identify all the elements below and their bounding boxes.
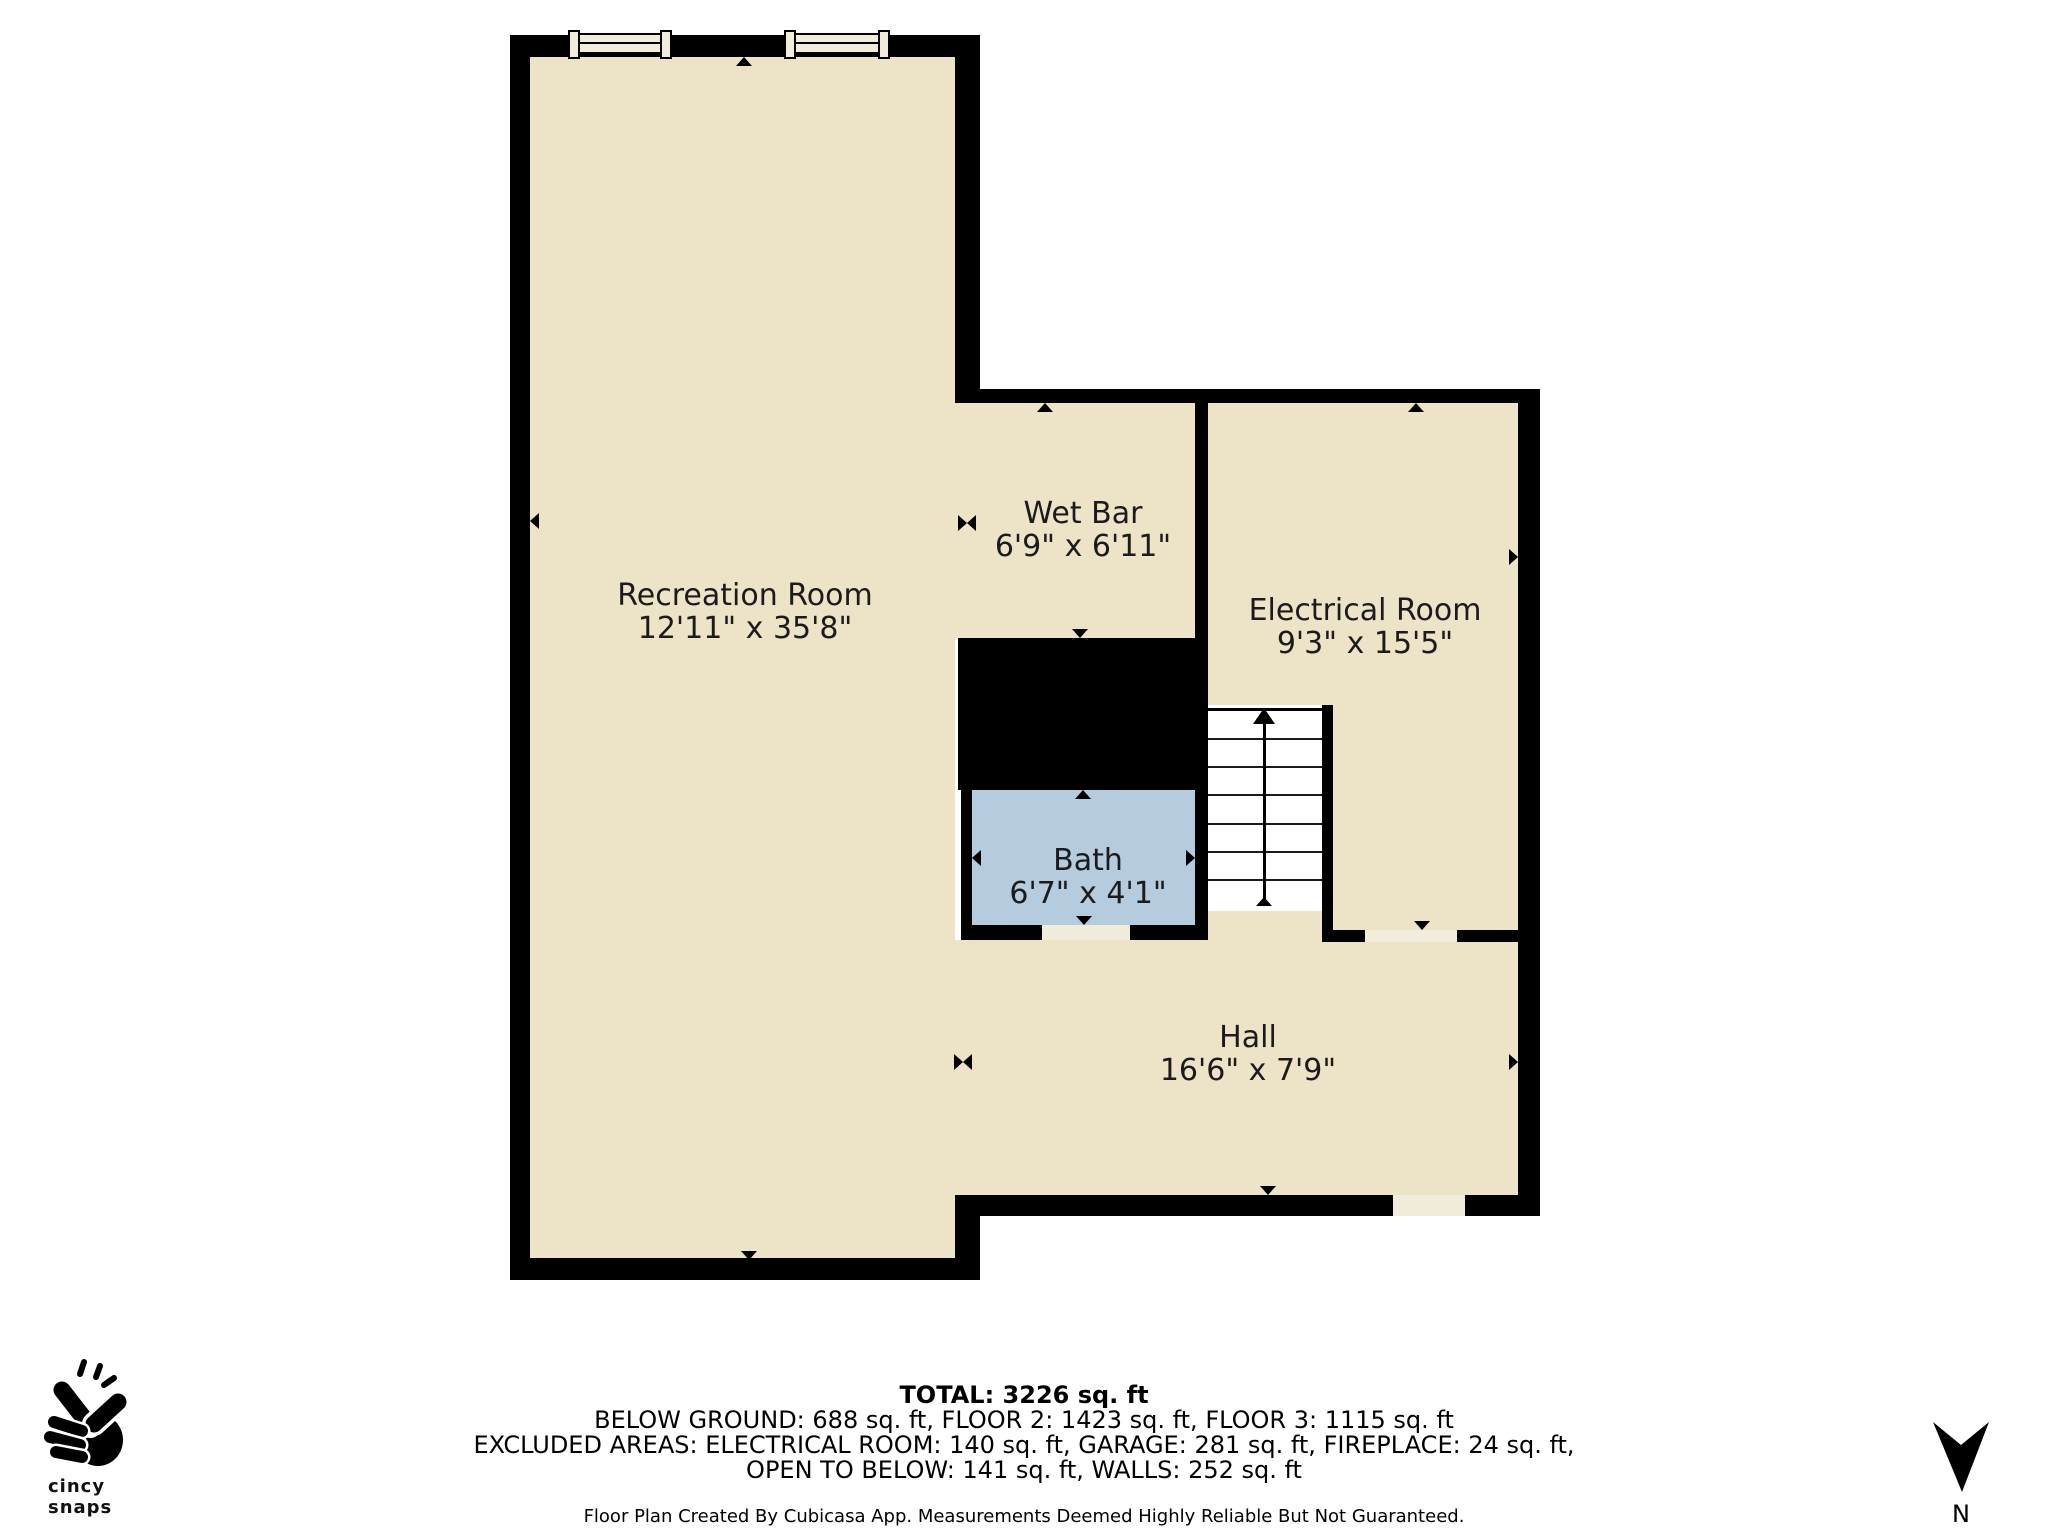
room-dimensions: 12'11" x 35'8" bbox=[617, 612, 872, 645]
door-marker-icon bbox=[1072, 629, 1088, 638]
bath-door-sill bbox=[1042, 925, 1130, 940]
room-label-hall: Hall 16'6" x 7'9" bbox=[1160, 1021, 1336, 1087]
room-name: Recreation Room bbox=[617, 579, 872, 612]
wall-left bbox=[510, 35, 530, 1280]
window-2-midline bbox=[790, 42, 884, 44]
cincy-snaps-logo: cincy snaps bbox=[42, 1358, 172, 1518]
door-marker-icon bbox=[1414, 921, 1430, 930]
hall-door-sill bbox=[1393, 1195, 1465, 1216]
window-2-right-cap bbox=[878, 30, 890, 59]
door-marker-icon bbox=[1260, 1186, 1276, 1195]
electrical-room-floor-right bbox=[1333, 705, 1518, 930]
total-area-text: TOTAL: 3226 sq. ft bbox=[0, 1383, 2048, 1407]
door-marker-icon bbox=[736, 57, 752, 66]
wall-bottom-recreation bbox=[510, 1258, 980, 1280]
window-2-left-cap bbox=[784, 30, 796, 59]
window-1-right-cap bbox=[660, 30, 672, 59]
stair-direction-start-icon bbox=[1256, 897, 1272, 906]
door-marker-icon bbox=[1509, 1054, 1518, 1070]
divider-marker-icon bbox=[954, 1054, 963, 1070]
compass: N bbox=[1930, 1422, 1992, 1528]
wall-plan-right bbox=[1518, 389, 1540, 1216]
fireplace-block bbox=[958, 638, 1208, 790]
wall-top-right-block bbox=[955, 389, 1540, 403]
room-dimensions: 16'6" x 7'9" bbox=[1160, 1054, 1336, 1087]
wall-recreation-right-upper bbox=[955, 35, 980, 403]
excluded-areas-text: EXCLUDED AREAS: ELECTRICAL ROOM: 140 sq.… bbox=[0, 1433, 2048, 1457]
window-1-midline bbox=[574, 42, 666, 44]
wall-stairs-right bbox=[1322, 705, 1333, 942]
door-marker-icon bbox=[1408, 403, 1424, 412]
wall-bath-bottom-left bbox=[961, 925, 1042, 940]
north-arrow-icon bbox=[1931, 1422, 1991, 1494]
room-label-bath: Bath 6'7" x 4'1" bbox=[1009, 844, 1166, 910]
room-name: Bath bbox=[1009, 844, 1166, 877]
wall-electrical-bottom-right bbox=[1457, 930, 1518, 942]
divider-marker-icon bbox=[963, 1054, 972, 1070]
north-label: N bbox=[1930, 1500, 1992, 1528]
wall-hall-bottom-left bbox=[955, 1195, 1393, 1216]
stair-direction-arrow-icon bbox=[1253, 708, 1275, 724]
room-dimensions: 6'7" x 4'1" bbox=[1009, 877, 1166, 910]
logo-text: cincy snaps bbox=[48, 1476, 172, 1518]
door-marker-icon bbox=[1076, 916, 1092, 925]
wall-recreation-right-lower bbox=[955, 1195, 980, 1280]
door-marker-icon bbox=[1509, 549, 1518, 565]
room-name: Wet Bar bbox=[995, 497, 1171, 530]
door-marker-icon bbox=[972, 850, 981, 866]
door-marker-icon bbox=[741, 1251, 757, 1260]
snapping-hand-icon bbox=[42, 1358, 146, 1470]
wall-bath-bottom-right bbox=[1130, 925, 1208, 940]
divider-marker-icon bbox=[967, 515, 976, 531]
window-1 bbox=[572, 33, 668, 54]
room-label-recreation: Recreation Room 12'11" x 35'8" bbox=[617, 579, 872, 645]
room-dimensions: 9'3" x 15'5" bbox=[1249, 627, 1482, 660]
divider-marker-icon bbox=[958, 515, 967, 531]
door-marker-icon bbox=[1186, 850, 1195, 866]
electrical-door-sill bbox=[1365, 930, 1457, 942]
recreation-room-floor bbox=[530, 57, 955, 1258]
stair-direction-line bbox=[1263, 716, 1266, 906]
excluded-areas-text-2: OPEN TO BELOW: 141 sq. ft, WALLS: 252 sq… bbox=[0, 1458, 2048, 1482]
room-name: Hall bbox=[1160, 1021, 1336, 1054]
window-1-left-cap bbox=[568, 30, 580, 59]
disclaimer-text: Floor Plan Created By Cubicasa App. Meas… bbox=[0, 1506, 2048, 1527]
door-marker-icon bbox=[1075, 790, 1091, 799]
room-name: Electrical Room bbox=[1249, 594, 1482, 627]
wall-hall-bottom-right bbox=[1465, 1195, 1540, 1216]
room-dimensions: 6'9" x 6'11" bbox=[995, 530, 1171, 563]
area-summary: TOTAL: 3226 sq. ft BELOW GROUND: 688 sq.… bbox=[0, 1383, 2048, 1527]
wall-bath-left bbox=[961, 790, 972, 940]
wall-electrical-bottom-left bbox=[1333, 930, 1365, 942]
room-label-wet-bar: Wet Bar 6'9" x 6'11" bbox=[995, 497, 1171, 563]
under-stairs-floor bbox=[1208, 908, 1322, 942]
room-label-electrical: Electrical Room 9'3" x 15'5" bbox=[1249, 594, 1482, 660]
floor-areas-text: BELOW GROUND: 688 sq. ft, FLOOR 2: 1423 … bbox=[0, 1408, 2048, 1432]
window-2 bbox=[788, 33, 886, 54]
door-marker-icon bbox=[530, 513, 539, 529]
door-marker-icon bbox=[1037, 403, 1053, 412]
